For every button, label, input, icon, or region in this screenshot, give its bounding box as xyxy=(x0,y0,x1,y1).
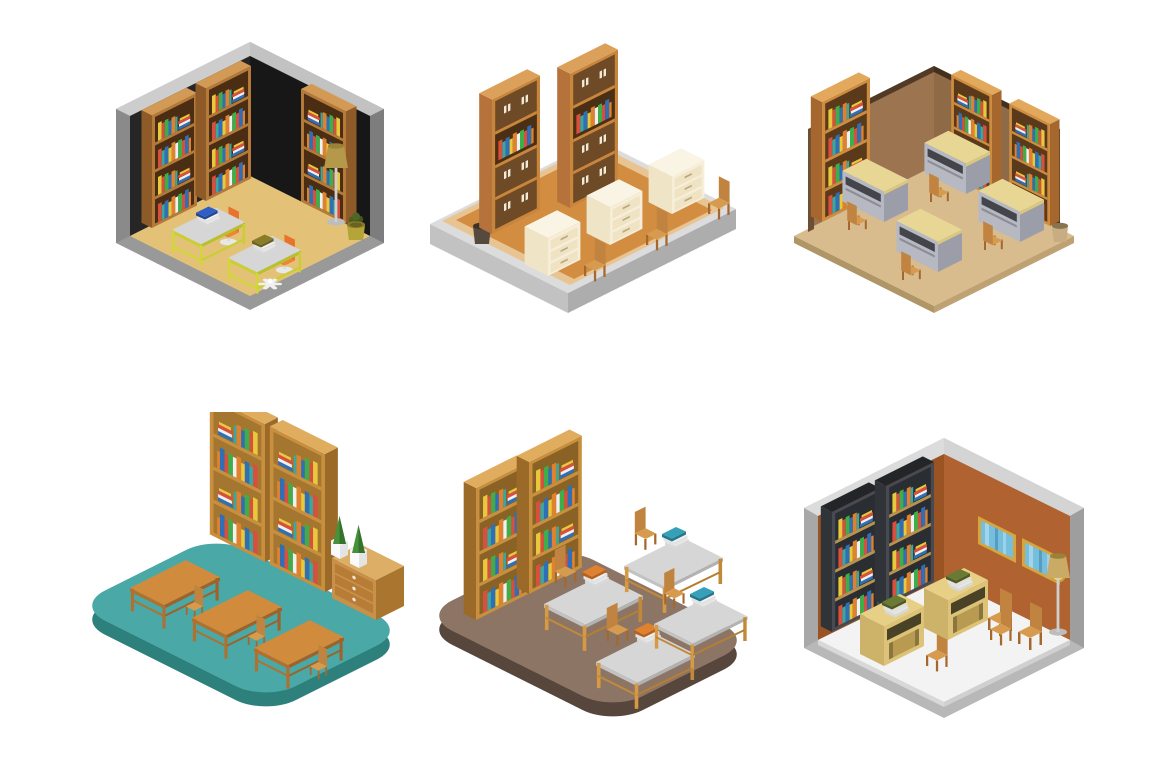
room-1-illustration xyxy=(100,30,400,330)
room-6-illustration xyxy=(788,426,1100,752)
bookcase xyxy=(875,456,934,606)
illustration-canvas xyxy=(0,0,1170,780)
waste-basket xyxy=(1052,223,1068,242)
cabinet-bookcase xyxy=(557,43,618,208)
room-4-illustration xyxy=(78,412,410,746)
bookshelf xyxy=(270,420,338,592)
bookshelf xyxy=(210,412,278,562)
room-5-illustration xyxy=(428,418,762,752)
bookshelf xyxy=(142,88,198,228)
bookshelf xyxy=(196,61,252,201)
cabinet-bookcase xyxy=(479,69,540,234)
bookshelf xyxy=(517,429,582,594)
room-3-illustration xyxy=(788,46,1080,322)
room-2-illustration xyxy=(428,38,750,333)
